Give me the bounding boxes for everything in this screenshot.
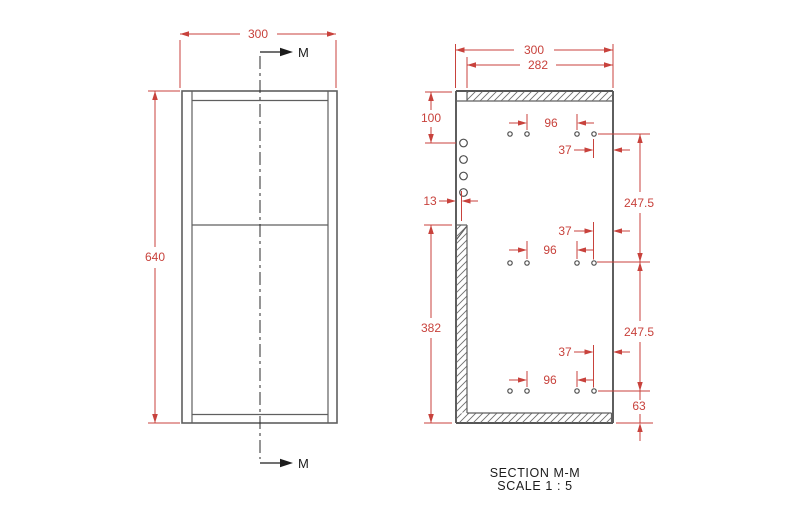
section-caption: SECTION M-M SCALE 1 : 5	[490, 466, 581, 493]
side-panel-length-value: 382	[421, 321, 441, 335]
front-height-value: 640	[145, 250, 165, 264]
section-arrow-top-icon	[280, 48, 293, 56]
hole-spacing-value-row1: 96	[544, 116, 558, 130]
hole-spacing-value-row2: 96	[543, 243, 557, 257]
shelf-pin-holes	[460, 139, 468, 196]
top-panel-section	[456, 91, 613, 101]
dim-edge-offset-row1: 37	[558, 139, 630, 158]
dim-hole-spacing-row2: 96	[509, 241, 594, 259]
dim-bottom-offset: 63	[616, 391, 653, 441]
front-width-value: 300	[248, 27, 268, 41]
opening-width-value: 282	[528, 58, 548, 72]
section-arrow-bottom-icon	[280, 459, 293, 467]
dim-row-spacing-2: 247.5	[598, 262, 654, 391]
row-spacing-value-1: 247.5	[624, 196, 654, 210]
overall-width-value: 300	[524, 43, 544, 57]
dim-top-hole-offset: 100	[421, 92, 456, 143]
back-thickness-value: 13	[423, 194, 437, 208]
edge-offset-value-row1: 37	[558, 143, 572, 157]
dim-side-panel-length: 382	[421, 225, 452, 423]
dim-edge-offset-row3: 37	[558, 345, 630, 388]
section-cut-mark-top: M	[260, 45, 309, 60]
dim-hole-spacing-row3: 96	[509, 371, 594, 387]
section-scale: SCALE 1 : 5	[497, 479, 572, 493]
top-hole-offset-value: 100	[421, 111, 441, 125]
system-holes-row-bottom	[508, 389, 596, 393]
edge-offset-value-row2: 37	[558, 224, 572, 238]
system-holes-row-top	[508, 132, 596, 136]
section-letter-top: M	[298, 45, 309, 60]
edge-offset-value-row3: 37	[558, 345, 572, 359]
back-panel-section	[456, 225, 467, 413]
dim-hole-spacing-row1: 96	[509, 114, 594, 130]
cad-drawing: M M 300 640	[0, 0, 800, 513]
technical-drawing-canvas: M M 300 640	[0, 0, 800, 513]
section-letter-bottom: M	[298, 456, 309, 471]
row-spacing-value-2: 247.5	[624, 325, 654, 339]
system-holes-row-middle	[508, 261, 596, 265]
dim-front-height: 640	[145, 91, 180, 423]
bottom-offset-value: 63	[632, 399, 646, 413]
dim-opening-width: 282	[467, 57, 613, 88]
section-view: 300 282 100 13	[421, 43, 654, 493]
section-title: SECTION M-M	[490, 466, 581, 480]
dim-back-thickness: 13	[423, 191, 478, 221]
hole-spacing-value-row3: 96	[543, 373, 557, 387]
dim-row-spacing-1: 247.5	[597, 134, 654, 262]
dim-edge-offset-row2: 37	[558, 222, 630, 260]
dim-front-width: 300	[180, 27, 336, 88]
front-view: M M 300 640	[145, 27, 337, 471]
bottom-panel-section	[457, 413, 612, 423]
section-outline	[456, 91, 613, 423]
section-cut-mark-bottom: M	[260, 456, 309, 471]
